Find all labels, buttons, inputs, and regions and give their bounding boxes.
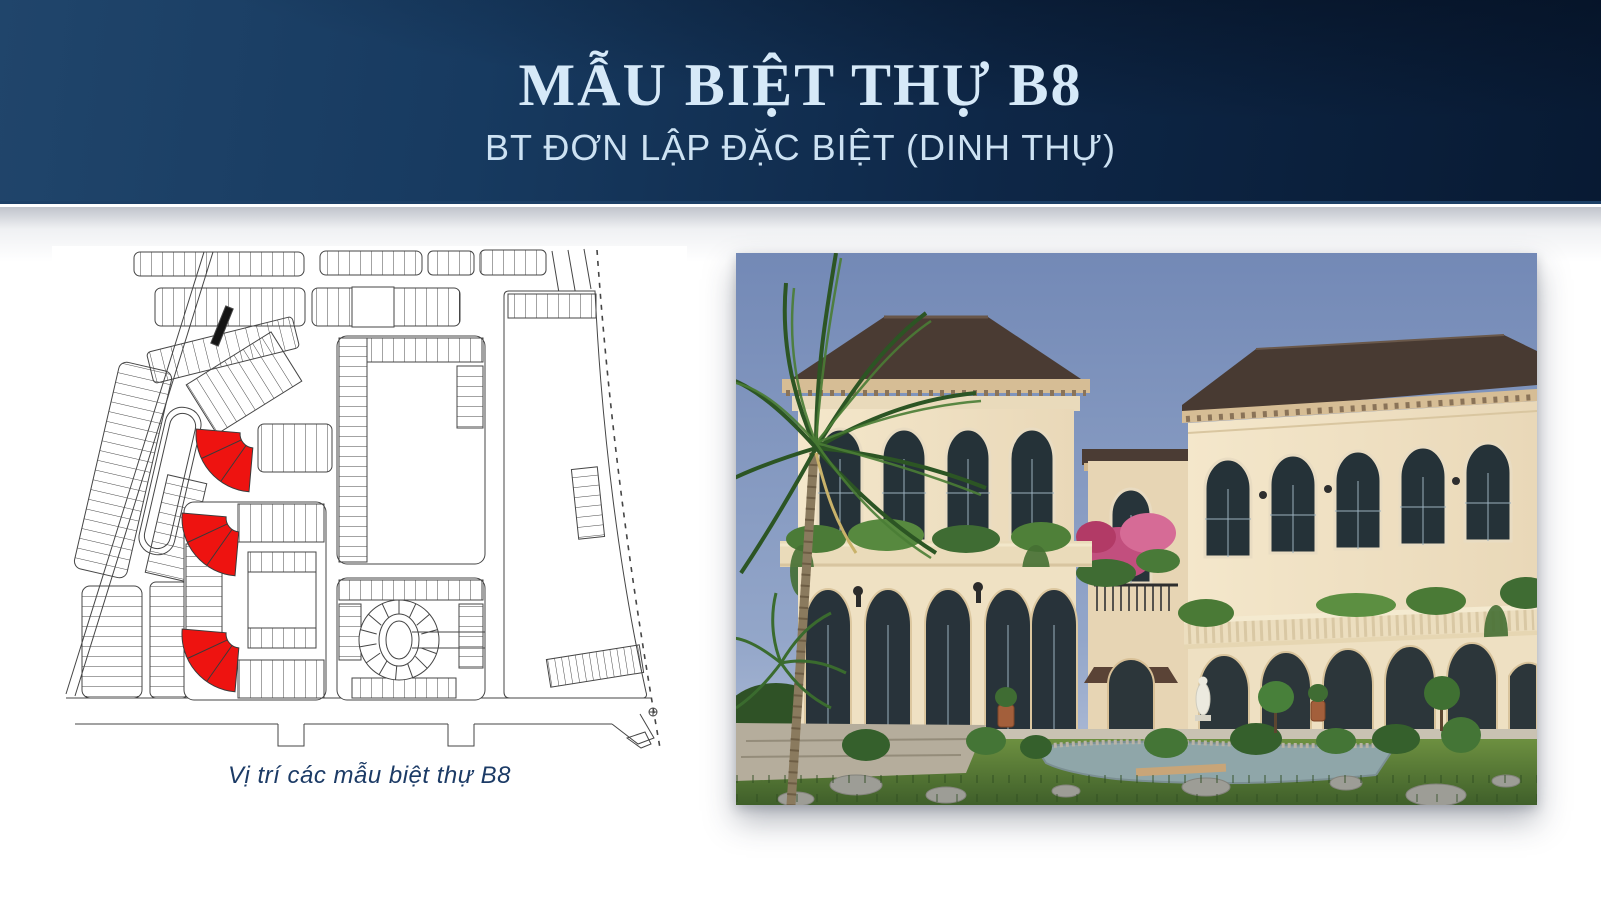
villa-right-wing: [1178, 335, 1537, 737]
villa-illustration: [736, 253, 1537, 805]
site-plan-map: [52, 246, 687, 752]
site-plan: [52, 246, 687, 752]
villa-center-wing: [1076, 449, 1194, 737]
plan-blocks: [73, 250, 647, 700]
presentation-slide: MẪU BIỆT THỰ B8 BT ĐƠN LẬP ĐẶC BIỆT (DIN…: [0, 0, 1601, 900]
page-subtitle: BT ĐƠN LẬP ĐẶC BIỆT (DINH THỰ): [0, 126, 1601, 170]
site-plan-caption: Vị trí các mẫu biệt thự B8: [52, 762, 687, 790]
page-title: MẪU BIỆT THỰ B8: [0, 52, 1601, 118]
tower-arcade: [805, 589, 1077, 735]
villa-left-wing: [780, 317, 1092, 737]
villa-photo: [736, 253, 1537, 805]
